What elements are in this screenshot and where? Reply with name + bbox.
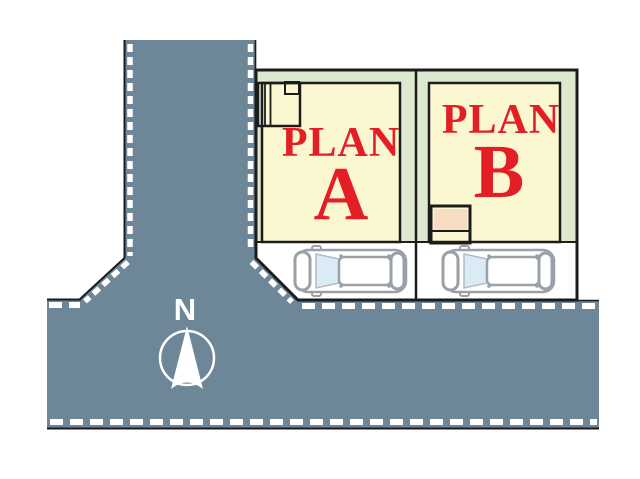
plot-b-letter: B — [474, 130, 525, 214]
site-plan-drawing: PLAN A PLAN B — [0, 0, 640, 479]
north-label: N — [174, 292, 196, 327]
car-b-icon — [443, 246, 554, 296]
entrance-b-porch — [434, 209, 467, 231]
car-a-icon — [295, 246, 406, 296]
plot-a-letter: A — [314, 152, 369, 236]
site-plan-canvas: PLAN A PLAN B — [0, 0, 640, 479]
